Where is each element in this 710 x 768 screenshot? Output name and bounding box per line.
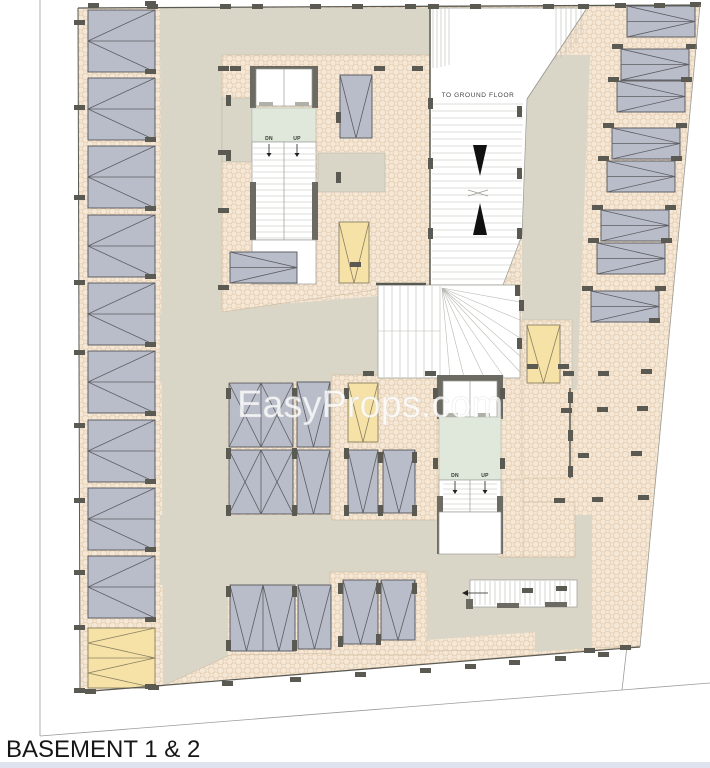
lift-lobby-2 (439, 417, 501, 480)
stair1-dn-label: DN (265, 136, 273, 142)
parking-stall-reserved (527, 325, 560, 383)
fan-ramp (376, 284, 520, 378)
left-parking-row (88, 10, 155, 618)
lift-lobby-1 (252, 108, 316, 142)
watermark: EasyProps.com (237, 384, 503, 426)
parking-stall (348, 450, 378, 513)
stair2-dn-label: DN (451, 473, 459, 479)
stair-core-1: DN UP (250, 66, 318, 284)
bottom-parking-row (230, 580, 415, 651)
plan-title: BASEMENT 1 & 2 (6, 736, 200, 763)
parking-stall (297, 450, 330, 514)
parking-stall (383, 450, 415, 513)
bottom-ramp (462, 580, 577, 609)
parking-stall (298, 585, 331, 649)
footer-strip (0, 762, 710, 768)
parking-stall (230, 585, 295, 651)
parking-stall (381, 580, 415, 640)
stair1-up-label: UP (293, 136, 301, 142)
stair2-up-label: UP (481, 473, 489, 479)
parking-stall-reserved (339, 222, 369, 283)
ramp-label: TO GROUND FLOOR (442, 92, 515, 99)
parking-stall (343, 580, 378, 644)
parking-stall (340, 75, 372, 138)
floor-plan: TO GROUND FLOOR (0, 0, 710, 768)
